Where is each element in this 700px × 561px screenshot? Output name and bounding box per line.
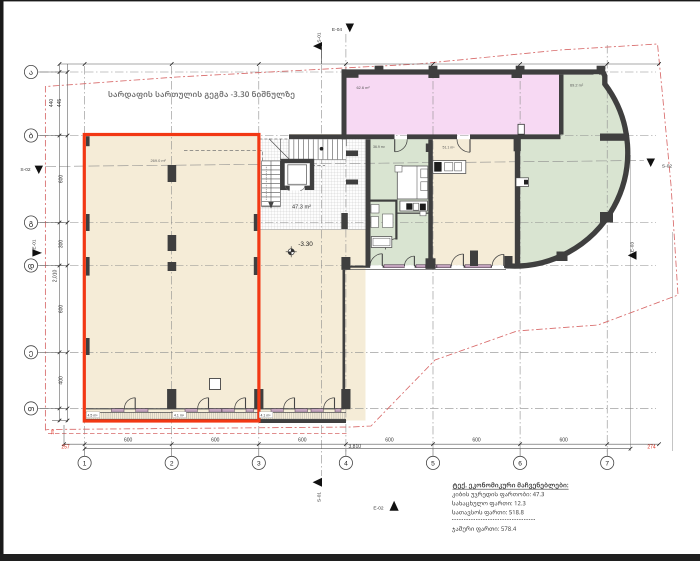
svg-text:274: 274	[647, 444, 656, 450]
svg-text:2,010: 2,010	[53, 270, 59, 283]
svg-text:600: 600	[59, 305, 65, 314]
svg-text:400: 400	[59, 376, 65, 385]
svg-text:-3.30: -3.30	[298, 241, 313, 248]
svg-text:4.5 m²: 4.5 m²	[88, 414, 99, 418]
svg-text:300: 300	[59, 240, 65, 249]
svg-text:269.0 m²: 269.0 m²	[151, 158, 167, 163]
svg-text:3,810: 3,810	[349, 444, 362, 450]
svg-text:600: 600	[559, 438, 568, 444]
svg-text:E-01: E-01	[32, 239, 38, 249]
svg-text:4: 4	[344, 460, 348, 467]
svg-text:S-01: S-01	[316, 32, 322, 42]
svg-text:E-04: E-04	[332, 27, 342, 33]
svg-text:600: 600	[472, 438, 481, 444]
svg-text:2: 2	[170, 460, 174, 467]
svg-text:E-02: E-02	[373, 506, 383, 512]
svg-text:36.9 m²: 36.9 m²	[373, 145, 386, 149]
svg-text:4.1 m²: 4.1 m²	[261, 414, 272, 418]
svg-text:S-02: S-02	[20, 167, 30, 173]
svg-text:600: 600	[385, 438, 394, 444]
svg-text:440: 440	[49, 99, 55, 108]
svg-text:5: 5	[431, 460, 435, 467]
svg-text:62.6 m²: 62.6 m²	[357, 85, 371, 90]
svg-text:7: 7	[605, 460, 609, 467]
svg-text:3: 3	[257, 460, 261, 467]
svg-text:29: 29	[50, 429, 55, 434]
svg-text:S-01: S-01	[316, 492, 322, 502]
svg-text:600: 600	[298, 438, 307, 444]
svg-text:47.3 m²: 47.3 m²	[292, 205, 311, 211]
svg-text:600: 600	[59, 175, 65, 184]
svg-text:69.2 m²: 69.2 m²	[570, 83, 584, 88]
svg-text:600: 600	[124, 438, 133, 444]
svg-text:51.1 m²: 51.1 m²	[443, 145, 456, 149]
svg-text:257: 257	[61, 444, 70, 450]
svg-text:S-02: S-02	[662, 163, 672, 169]
svg-text:600: 600	[211, 438, 220, 444]
svg-text:6: 6	[518, 460, 522, 467]
svg-text:4.1 m²: 4.1 m²	[174, 414, 185, 418]
svg-text:E-03: E-03	[630, 242, 636, 252]
svg-text:445: 445	[57, 99, 63, 108]
svg-text:1: 1	[83, 460, 87, 467]
